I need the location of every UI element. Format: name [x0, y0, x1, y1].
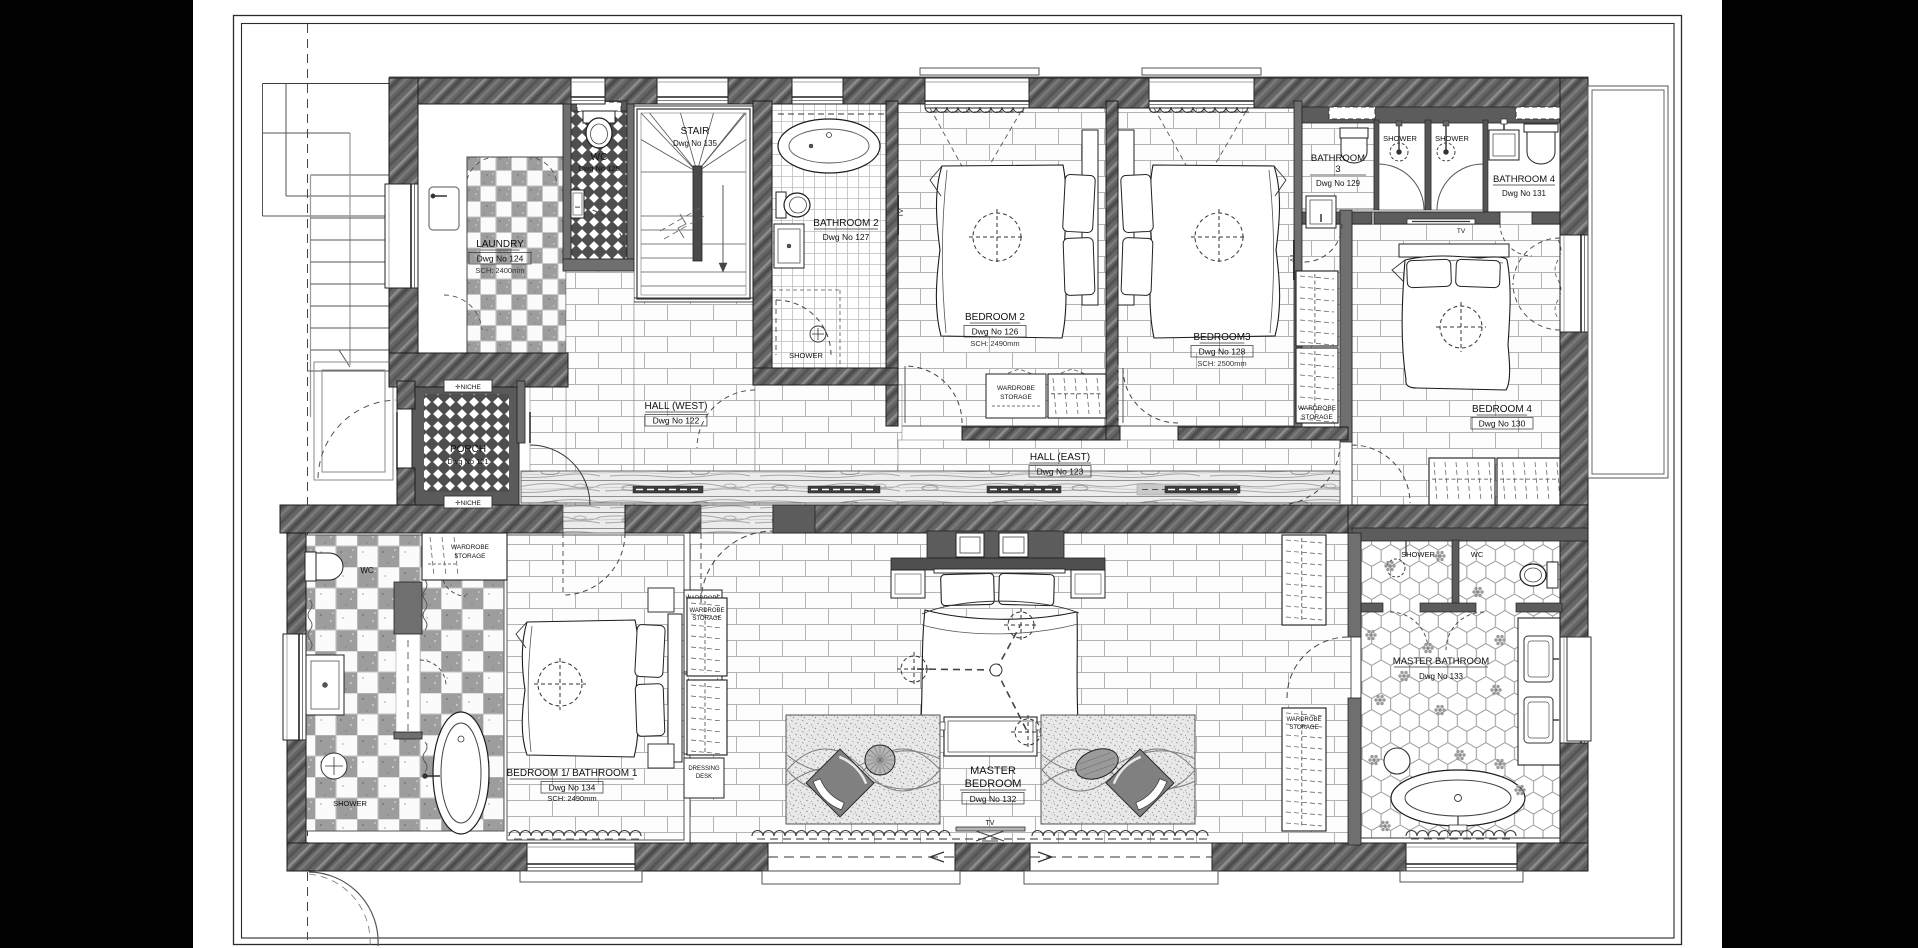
- svg-text:Dwg No 121: Dwg No 121: [447, 457, 488, 466]
- svg-text:SHOWER: SHOWER: [333, 799, 367, 808]
- svg-text:PORCH: PORCH: [450, 444, 486, 455]
- svg-text:Dwg No 127: Dwg No 127: [823, 232, 870, 242]
- svg-text:STORAGE: STORAGE: [1289, 725, 1318, 731]
- svg-text:✛NICHE: ✛NICHE: [455, 383, 481, 391]
- svg-text:TV: TV: [898, 208, 905, 217]
- svg-text:SCH: 2400mm: SCH: 2400mm: [475, 266, 524, 275]
- svg-text:Dwg No 123: Dwg No 123: [1037, 467, 1084, 477]
- svg-text:BEDROOM 4: BEDROOM 4: [1472, 404, 1532, 415]
- svg-text:SHOWER: SHOWER: [789, 351, 823, 360]
- svg-text:SCH: 2500mm: SCH: 2500mm: [1197, 359, 1246, 368]
- svg-text:TV: TV: [986, 820, 995, 827]
- svg-text:WC: WC: [1471, 550, 1484, 559]
- svg-text:Dwg No 130: Dwg No 130: [1479, 419, 1526, 429]
- svg-text:BEDROOM 1/ BATHROOM 1: BEDROOM 1/ BATHROOM 1: [507, 768, 638, 779]
- svg-text:BEDROOM 2: BEDROOM 2: [965, 312, 1025, 323]
- svg-text:✛NICHE: ✛NICHE: [455, 499, 481, 507]
- svg-text:HALL (EAST): HALL (EAST): [1030, 452, 1090, 463]
- svg-text:$TORAGE: $TORAGE: [455, 553, 487, 560]
- svg-text:WARDROBE: WARDROBE: [1286, 717, 1321, 723]
- svg-text:WARDROBE: WARDROBE: [997, 385, 1036, 392]
- svg-text:WC: WC: [360, 566, 374, 575]
- svg-text:WARDROBE: WARDROBE: [689, 608, 724, 614]
- svg-text:WC: WC: [591, 152, 608, 163]
- svg-text:DESK: DESK: [696, 774, 712, 780]
- svg-text:SHOWER: SHOWER: [1383, 134, 1417, 143]
- svg-text:STORAGE: STORAGE: [1301, 414, 1333, 421]
- svg-text:SCH: 2490mm: SCH: 2490mm: [547, 794, 596, 803]
- svg-text:BATHROOM: BATHROOM: [1311, 153, 1365, 164]
- svg-text:Dwg No 128: Dwg No 128: [1199, 347, 1246, 357]
- svg-text:Dwg No 122: Dwg No 122: [653, 416, 700, 426]
- svg-text:Dwg No 126: Dwg No 126: [972, 327, 1019, 337]
- svg-text:WARDROBE: WARDROBE: [1298, 405, 1337, 412]
- svg-text:Dwg No 132: Dwg No 132: [970, 794, 1017, 804]
- svg-text:WARDROBE: WARDROBE: [451, 544, 490, 551]
- svg-text:HALL (WEST): HALL (WEST): [645, 401, 708, 412]
- svg-text:Dwg No 133: Dwg No 133: [1419, 672, 1464, 681]
- svg-text:BEDROOM3: BEDROOM3: [1193, 332, 1251, 343]
- svg-text:3: 3: [1335, 164, 1340, 175]
- svg-text:Dwg No 124: Dwg No 124: [477, 254, 524, 264]
- svg-text:DRESSING: DRESSING: [688, 766, 720, 772]
- svg-text:Dwg No 129: Dwg No 129: [1316, 179, 1361, 188]
- svg-text:STORAGE: STORAGE: [1000, 394, 1032, 401]
- svg-text:Dwg No 131: Dwg No 131: [1502, 189, 1547, 198]
- svg-text:Dwg No 135: Dwg No 135: [673, 139, 718, 148]
- svg-text:BATHROOM 2: BATHROOM 2: [813, 218, 879, 229]
- svg-text:MASTER BATHROOM: MASTER BATHROOM: [1393, 656, 1489, 667]
- svg-text:STORAGE: STORAGE: [692, 616, 721, 622]
- svg-text:Dwg No 134: Dwg No 134: [549, 783, 596, 793]
- svg-text:Dwg No 125: Dwg No 125: [578, 164, 619, 173]
- svg-text:SCH: 2490mm: SCH: 2490mm: [970, 339, 1019, 348]
- svg-text:MASTER: MASTER: [970, 765, 1016, 777]
- svg-text:LAUNDRY: LAUNDRY: [476, 239, 524, 250]
- svg-text:BEDROOM: BEDROOM: [965, 778, 1022, 790]
- svg-text:BATHROOM 4: BATHROOM 4: [1493, 174, 1555, 185]
- svg-text:SHOWER: SHOWER: [1435, 134, 1469, 143]
- svg-text:TV: TV: [1457, 228, 1466, 235]
- svg-text:STAIR: STAIR: [681, 126, 710, 137]
